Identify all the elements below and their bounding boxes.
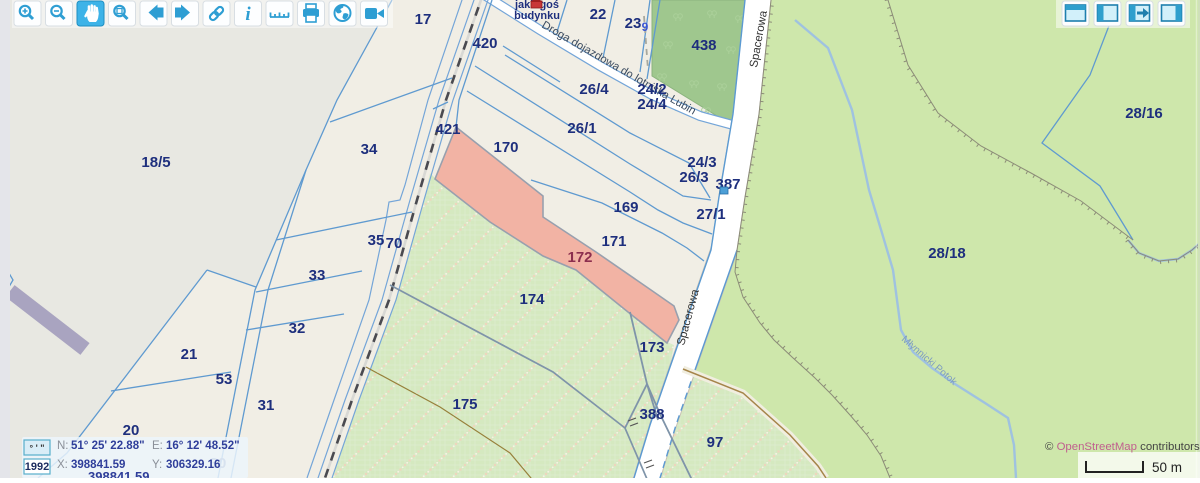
svg-text:97: 97	[707, 434, 724, 451]
svg-text:© OpenStreetMap contributors: © OpenStreetMap contributors	[1045, 441, 1200, 453]
svg-text:50 m: 50 m	[1152, 460, 1182, 475]
svg-text:22: 22	[590, 6, 607, 23]
svg-text:70: 70	[386, 235, 403, 252]
svg-text:16° 12' 48.52": 16° 12' 48.52"	[166, 440, 240, 452]
svg-text:28/16: 28/16	[1125, 105, 1163, 122]
svg-text:17: 17	[415, 11, 432, 28]
svg-text:X:: X:	[57, 459, 68, 471]
svg-text:169: 169	[613, 199, 638, 216]
svg-text:438: 438	[691, 37, 716, 54]
svg-text:421: 421	[435, 121, 460, 138]
svg-text:33: 33	[309, 267, 326, 284]
svg-text:26/1: 26/1	[567, 120, 596, 137]
svg-text:26/3: 26/3	[679, 169, 708, 186]
svg-text:31: 31	[258, 397, 275, 414]
svg-text:18/5: 18/5	[141, 154, 170, 171]
svg-text:170: 170	[493, 139, 518, 156]
svg-text:32: 32	[289, 320, 306, 337]
svg-text:9: 9	[642, 20, 649, 34]
svg-text:23: 23	[625, 15, 642, 32]
svg-text:24/4: 24/4	[637, 96, 667, 113]
svg-text:20: 20	[123, 422, 140, 439]
svg-text:172: 172	[567, 249, 592, 266]
svg-text:28/18: 28/18	[928, 245, 966, 262]
svg-text:306329.16: 306329.16	[166, 459, 220, 471]
svg-text:53: 53	[216, 371, 233, 388]
svg-text:35: 35	[368, 232, 385, 249]
svg-text:E:: E:	[152, 440, 163, 452]
svg-text:26/4: 26/4	[579, 81, 609, 98]
svg-text:27/1: 27/1	[696, 206, 725, 223]
svg-text:° ' ": ° ' "	[29, 443, 44, 453]
svg-text:398841.59: 398841.59	[88, 469, 149, 478]
svg-text:1992: 1992	[25, 461, 49, 473]
svg-text:34: 34	[361, 141, 378, 158]
svg-text:174: 174	[519, 291, 545, 308]
svg-text:420: 420	[472, 35, 497, 52]
svg-text:Y:: Y:	[152, 459, 162, 471]
svg-text:21: 21	[181, 346, 198, 363]
svg-text:171: 171	[601, 233, 626, 250]
svg-text:175: 175	[452, 396, 477, 413]
svg-text:i: i	[245, 4, 251, 25]
svg-text:51° 25' 22.88": 51° 25' 22.88"	[71, 440, 145, 452]
svg-text:388: 388	[639, 406, 664, 423]
svg-text:173: 173	[639, 339, 664, 356]
svg-text:N:: N:	[57, 440, 69, 452]
svg-text:budynku: budynku	[514, 10, 560, 22]
